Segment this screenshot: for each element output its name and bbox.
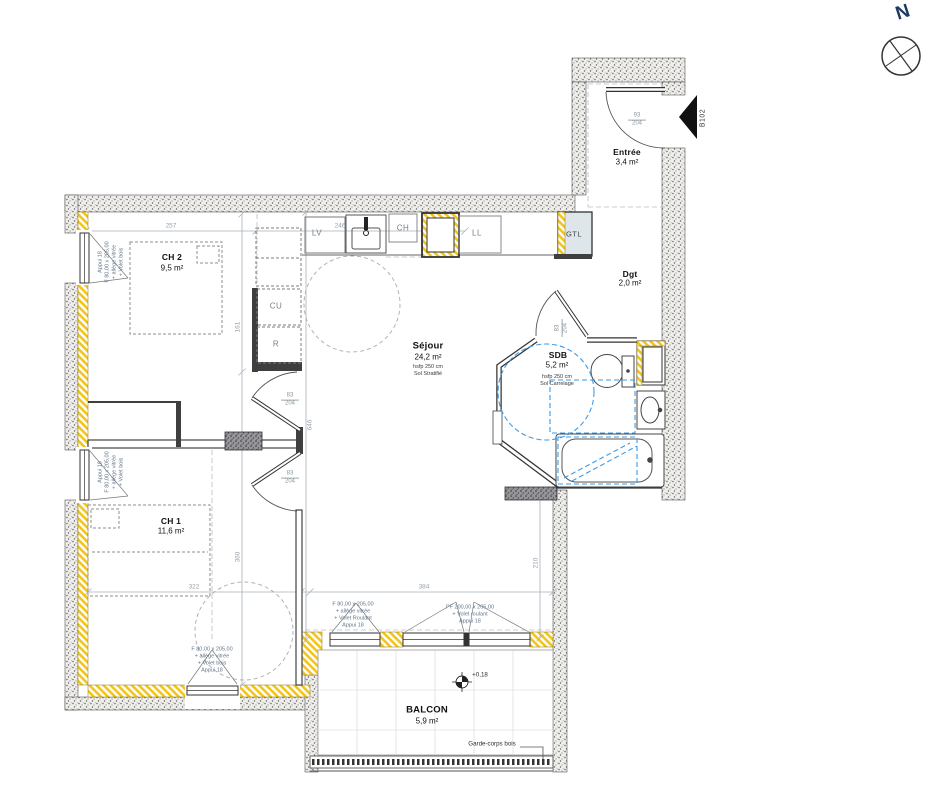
entry-arrow [679, 95, 697, 139]
dim-246: 246 [335, 223, 346, 230]
room-ch2-name: CH 2 [162, 252, 182, 262]
compass-icon [882, 37, 920, 75]
level-label: +0,18 [472, 672, 488, 679]
sdb-door-size: 83204 [555, 319, 570, 337]
room-entree-name: Entrée [613, 147, 641, 157]
dim-257: 257 [166, 223, 177, 230]
room-entree-area: 3,4 m² [616, 158, 639, 167]
dishwasher-label: LV [312, 229, 322, 238]
window-label-balcony-left: F 80,00 x 205,00+ allège vitrée + Volet … [332, 602, 373, 631]
furniture [88, 242, 222, 596]
room-sdb-name: SDB [549, 350, 568, 360]
dim-360: 360 [235, 552, 242, 563]
window-label-ch2-left: Appui 18F 80,00 x 205,00 + allège vitrée… [98, 241, 127, 282]
ch2-door-size: 83204 [281, 393, 299, 408]
ch1-door-size: 83204 [281, 471, 299, 486]
bathroom-fixtures [556, 341, 665, 487]
railing-label: Garde-corps bois [468, 741, 515, 748]
floor-plan-drawing [0, 0, 931, 800]
room-balcon-name: BALCON [406, 705, 448, 716]
room-ch2-area: 9,5 m² [161, 264, 184, 273]
boiler-label: CH [397, 224, 410, 233]
room-ch1-name: CH 1 [161, 516, 181, 526]
unit-number-label: B102 [700, 109, 707, 127]
room-ch1-area: 11,6 m² [158, 527, 185, 536]
room-sdb-ceiling: hsfp 250 cm [542, 374, 572, 380]
gtl-label: GTL [566, 230, 582, 239]
dim-210: 210 [533, 558, 540, 569]
entry-door-size: 93204 [628, 113, 646, 128]
dim-384: 384 [419, 584, 430, 591]
dim-646: 646 [307, 420, 314, 431]
fridge-label: R [273, 340, 279, 349]
room-sdb-area: 5,2 m² [546, 361, 569, 370]
room-balcon-area: 5,9 m² [416, 717, 439, 726]
railing [310, 756, 553, 771]
room-sejour-floor: Sol Stratifié [414, 371, 442, 377]
room-dgt-name: Dgt [623, 269, 638, 279]
dim-322: 322 [189, 584, 200, 591]
window-label-ch1-left: Appui 18F 80,00 x 205,00 + allège vitrée… [98, 451, 127, 492]
window-label-balcony-main: PF 200,00 x 205,00+ Volet roulant Appui … [446, 604, 494, 625]
room-sejour-area: 24,2 m² [414, 353, 441, 362]
room-sejour-name: Séjour [413, 341, 444, 352]
room-dgt-area: 2,0 m² [619, 279, 642, 288]
washer-label: LL [472, 229, 482, 238]
dim-161: 161 [235, 322, 242, 333]
room-sdb-floor: Sol Carrelage [540, 381, 574, 387]
window-label-ch1-bottom: F 80,00 x 205,00+ allège vitrée + Volet … [191, 647, 232, 676]
cu-closet-label: CU [270, 302, 283, 311]
room-sejour-ceiling: hsfp 250 cm [413, 364, 443, 370]
